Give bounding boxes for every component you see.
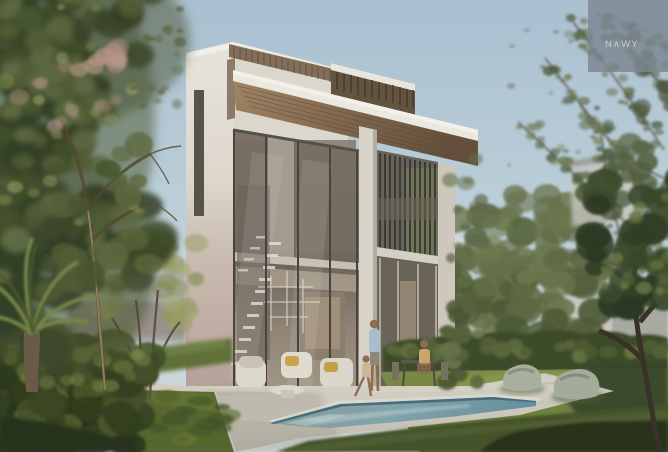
svg-text:N∧WY: N∧WY [605, 39, 639, 50]
